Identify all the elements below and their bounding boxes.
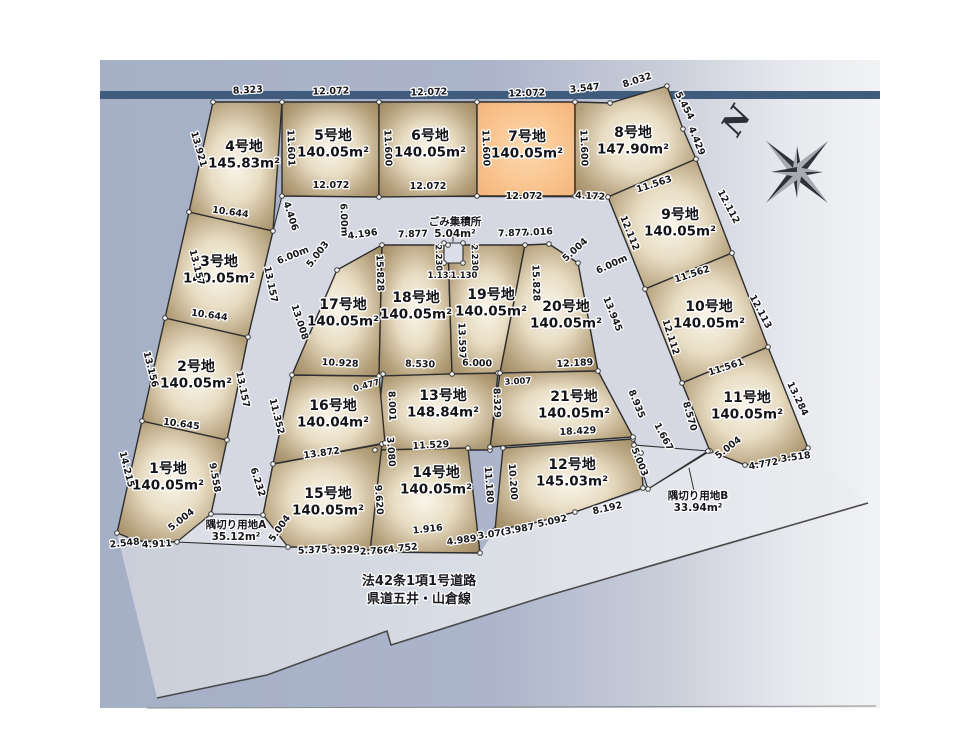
- boundary-vertex-dot: [211, 100, 216, 105]
- boundary-vertex-dot: [680, 381, 685, 386]
- dimension-label: 9.620: [372, 484, 385, 515]
- boundary-vertex-dot: [501, 446, 506, 451]
- dimension-label: 18.429: [559, 425, 596, 438]
- boundary-vertex-dot: [646, 487, 651, 492]
- garbage-area-label: 5.04m²: [434, 228, 476, 240]
- boundary-vertex-dot: [573, 100, 578, 105]
- road-name-label: 県道五井・山倉線: [367, 591, 472, 607]
- boundary-vertex-dot: [461, 261, 466, 266]
- boundary-vertex-dot: [694, 157, 699, 162]
- boundary-vertex-dot: [163, 316, 168, 321]
- boundary-vertex-dot: [576, 261, 581, 266]
- boundary-vertex-dot: [261, 513, 266, 518]
- plot-14-name-label: 14号地: [412, 464, 459, 481]
- boundary-vertex-dot: [140, 419, 145, 424]
- dimension-label: 12.072: [410, 181, 447, 192]
- boundary-vertex-dot: [246, 335, 251, 340]
- dimension-label: 11.600: [381, 129, 393, 166]
- dimension-label: 11.529: [412, 439, 449, 452]
- dimension-label: 3.080: [384, 436, 397, 467]
- boundary-vertex-dot: [466, 446, 471, 451]
- plot-19-name-label: 19号地: [467, 286, 514, 303]
- boundary-vertex-dot: [743, 463, 748, 468]
- dimension-label: 12.189: [556, 357, 593, 370]
- boundary-vertex-dot: [665, 84, 670, 89]
- plot-4-area-label: 145.83m²: [208, 156, 280, 172]
- boundary-vertex-dot: [290, 373, 295, 378]
- plot-11-area-label: 140.05m²: [711, 407, 783, 423]
- plot-7-name-label: 7号地: [508, 128, 546, 145]
- dimension-label: 13.597: [455, 322, 467, 359]
- dimension-label: 10.928: [322, 357, 360, 370]
- plot-10-name-label: 10号地: [685, 298, 732, 315]
- plot-8-name-label: 8号地: [614, 124, 652, 141]
- boundary-vertex-dot: [488, 445, 493, 450]
- boundary-vertex-dot: [547, 242, 552, 247]
- dimension-label: 12.072: [312, 85, 349, 97]
- plot-2-name-label: 2号地: [177, 358, 215, 375]
- boundary-vertex-dot: [766, 345, 771, 350]
- boundary-vertex-dot: [475, 194, 480, 199]
- boundary-vertex-dot: [209, 512, 214, 517]
- boundary-vertex-dot: [681, 127, 686, 132]
- plot-12-name-label: 12号地: [548, 456, 595, 473]
- plot-2-area-label: 140.05m²: [160, 376, 232, 392]
- boundary-vertex-dot: [596, 369, 601, 374]
- dimension-label: 11.600: [479, 129, 491, 166]
- plot-5-area-label: 140.05m²: [297, 145, 369, 161]
- plot-21-name-label: 21号地: [550, 388, 597, 405]
- boundary-vertex-dot: [380, 243, 385, 248]
- boundary-vertex-dot: [631, 435, 636, 440]
- plot-4-name-label: 4号地: [225, 138, 263, 155]
- boundary-vertex-dot: [475, 100, 480, 105]
- boundary-vertex-dot: [115, 531, 120, 536]
- dimension-label: 1.130: [451, 271, 478, 281]
- dimension-label: 2.230: [469, 244, 480, 271]
- boundary-vertex-dot: [641, 486, 646, 491]
- boundary-vertex-dot: [225, 438, 230, 443]
- plot-20-area-label: 140.05m²: [530, 316, 602, 332]
- plot-6-area-label: 140.05m²: [394, 145, 466, 161]
- boundary-vertex-dot: [643, 287, 648, 292]
- boundary-vertex-dot: [280, 194, 285, 199]
- dimension-label: 15.828: [373, 254, 385, 291]
- boundary-vertex-dot: [377, 195, 382, 200]
- boundary-vertex-dot: [606, 195, 611, 200]
- sumikiri-a-area-label: 35.12m²: [212, 531, 261, 543]
- plot-18-area-label: 140.05m²: [380, 307, 452, 323]
- boundary-vertex-dot: [608, 101, 613, 106]
- boundary-vertex-dot: [280, 100, 285, 105]
- plot-16-area-label: 140.04m²: [297, 415, 369, 431]
- boundary-vertex-dot: [373, 448, 378, 453]
- dimension-label: 8.001: [385, 391, 397, 421]
- plot-1-area-label: 140.05m²: [132, 478, 204, 494]
- plot-13-name-label: 13号地: [419, 387, 466, 404]
- sumikiri-a-name-label: 隅切り用地A: [206, 518, 267, 531]
- dimension-label: 2.766: [360, 545, 391, 558]
- dimension-label: 11.600: [577, 129, 589, 166]
- plot-1-name-label: 1号地: [149, 460, 187, 477]
- garbage-name-label: ごみ集積所: [429, 215, 482, 228]
- boundary-vertex-dot: [523, 243, 528, 248]
- dimension-label: 3.007: [504, 376, 531, 387]
- boundary-vertex-dot: [730, 251, 735, 256]
- boundary-vertex-dot: [187, 210, 192, 215]
- boundary-vertex-dot: [478, 551, 483, 556]
- plot-18-name-label: 18号地: [392, 289, 439, 306]
- boundary-vertex-dot: [377, 100, 382, 105]
- boundary-vertex-dot: [450, 372, 455, 377]
- boundary-vertex-dot: [573, 510, 578, 515]
- plot-3-name-label: 3号地: [200, 253, 238, 270]
- dimension-label: 7.877: [498, 227, 528, 239]
- plot-15-name-label: 15号地: [304, 485, 351, 502]
- plot-16-name-label: 16号地: [309, 397, 356, 414]
- sumikiri-b-name-label: 隅切り用地B: [668, 489, 729, 502]
- boundary-vertex-dot: [271, 229, 276, 234]
- plot-5-name-label: 5号地: [314, 127, 352, 144]
- plot-6-name-label: 6号地: [411, 127, 449, 144]
- top-road-band: [100, 91, 880, 99]
- plot-8-area-label: 147.90m²: [597, 142, 669, 158]
- boundary-vertex-dot: [461, 241, 466, 246]
- plot-17-area-label: 140.05m²: [307, 314, 379, 330]
- dimension-label: 15.828: [529, 264, 541, 301]
- plot-9-name-label: 9号地: [661, 206, 699, 223]
- plot-9-area-label: 140.05m²: [644, 224, 716, 240]
- road-law-label: 法42条1項1号道路: [362, 573, 477, 589]
- dimension-label: 4.911: [142, 538, 173, 551]
- plot-19-area-label: 140.05m²: [455, 304, 527, 320]
- dimension-label: 2.230: [433, 244, 444, 271]
- land-subdivision-map: 1号地140.05m²2号地140.05m²3号地140.05m²4号地145.…: [0, 0, 970, 728]
- dimension-label: 5.375: [298, 544, 329, 557]
- boundary-vertex-dot: [271, 462, 276, 467]
- dimension-label: 7.877: [398, 228, 428, 240]
- dimension-label: 8.530: [405, 358, 436, 370]
- plot-12-area-label: 145.03m²: [536, 474, 608, 490]
- dimension-label: 8.323: [233, 84, 264, 97]
- dimension-label: 12.072: [506, 191, 543, 202]
- dimension-label: 12.072: [508, 87, 545, 99]
- dimension-label: 3.929: [330, 544, 361, 557]
- plot-15-area-label: 140.05m²: [292, 503, 364, 519]
- site-plan-page: 1号地140.05m²2号地140.05m²3号地140.05m²4号地145.…: [0, 0, 970, 728]
- plot-20-name-label: 20号地: [542, 298, 589, 315]
- dimension-label: 12.072: [410, 86, 447, 98]
- plot-17-name-label: 17号地: [319, 296, 366, 313]
- plot-7-area-label: 140.05m²: [491, 146, 563, 162]
- dimension-label: 12.072: [313, 180, 350, 191]
- dimension-label: 4.172: [575, 190, 606, 203]
- plot-14-area-label: 140.05m²: [400, 482, 472, 498]
- boundary-vertex-dot: [335, 268, 340, 273]
- plot-10-area-label: 140.05m²: [673, 316, 745, 332]
- boundary-vertex-dot: [286, 545, 291, 550]
- boundary-vertex-dot: [175, 540, 180, 545]
- boundary-vertex-dot: [498, 371, 503, 376]
- plot-11-name-label: 11号地: [723, 389, 770, 406]
- dimension-label: 6.000: [462, 357, 493, 369]
- plot-21-area-label: 140.05m²: [538, 406, 610, 422]
- plot-13-area-label: 148.84m²: [407, 405, 479, 421]
- dimension-label: 11.601: [284, 129, 296, 166]
- boundary-vertex-dot: [706, 449, 711, 454]
- dimension-label: 8.329: [490, 388, 502, 418]
- sumikiri-b-area-label: 33.94m²: [674, 502, 723, 514]
